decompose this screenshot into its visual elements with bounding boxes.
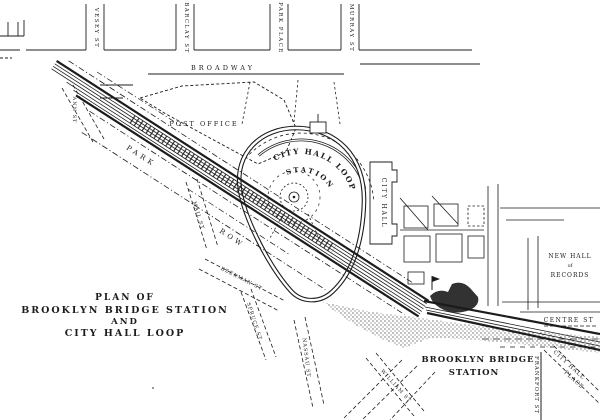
street-label-spruce: SPRUCE ST [245,302,263,342]
street-label-park-row-1: PARK [125,144,158,169]
street-grid-top [0,4,480,98]
terminal-flag-icon [432,276,440,282]
brooklyn-bridge-station-plan: BROADWAY VESEY ST BARCLAY ST PARK PLACE … [0,0,600,420]
station-label-loop-station: STATION [285,165,337,191]
station-label-brooklyn-bridge-1: BROOKLYN BRIDGE [421,355,534,365]
loop-station-textpath: STATION [285,165,337,191]
map-canvas: BROADWAY VESEY ST BARCLAY ST PARK PLACE … [0,0,600,420]
street-label-broadway: BROADWAY [191,64,255,72]
title-line-1: PLAN OF [95,293,155,303]
station-label-brooklyn-bridge-2: STATION [449,368,500,378]
map-dot [152,387,154,389]
street-label-nassau: NASSAU ST [301,338,312,378]
map-title: PLAN OF BROOKLYN BRIDGE STATION AND CITY… [21,293,229,339]
street-label-beekman: BEEKMAN ST [220,266,264,292]
landmark-label-hall-of-records-3: RECORDS [551,272,590,279]
landmark-label-city-hall: CITY HALL [380,178,387,229]
title-line-2: BROOKLYN BRIDGE STATION [21,305,229,316]
landmark-label-hall-of-records-1: NEW HALL [548,253,591,260]
street-label-barclay: BARCLAY ST [183,2,189,54]
street-label-park-place: PARK PLACE [277,2,283,54]
bridge-terminal-structure [430,283,478,313]
street-label-murray: MURRAY ST [348,4,354,53]
landmark-label-post-office: POST OFFICE [169,120,238,128]
city-blocks-east [400,184,600,312]
street-label-vesey: VESEY ST [93,7,99,49]
street-label-centre: CENTRE ST [544,317,595,324]
title-line-3: AND [110,317,139,327]
street-label-william: WILLIAM ST [379,368,412,404]
street-label-mail: MAIL ST [191,201,205,231]
street-label-ann: ANN ST [71,96,77,124]
landmark-label-hall-of-records-2: of [568,263,574,269]
street-label-park-row-2: ROW [218,227,246,249]
loop-entrance-structure [310,122,326,133]
city-hall-loop-track [239,114,374,300]
title-line-4: CITY HALL LOOP [65,328,186,339]
